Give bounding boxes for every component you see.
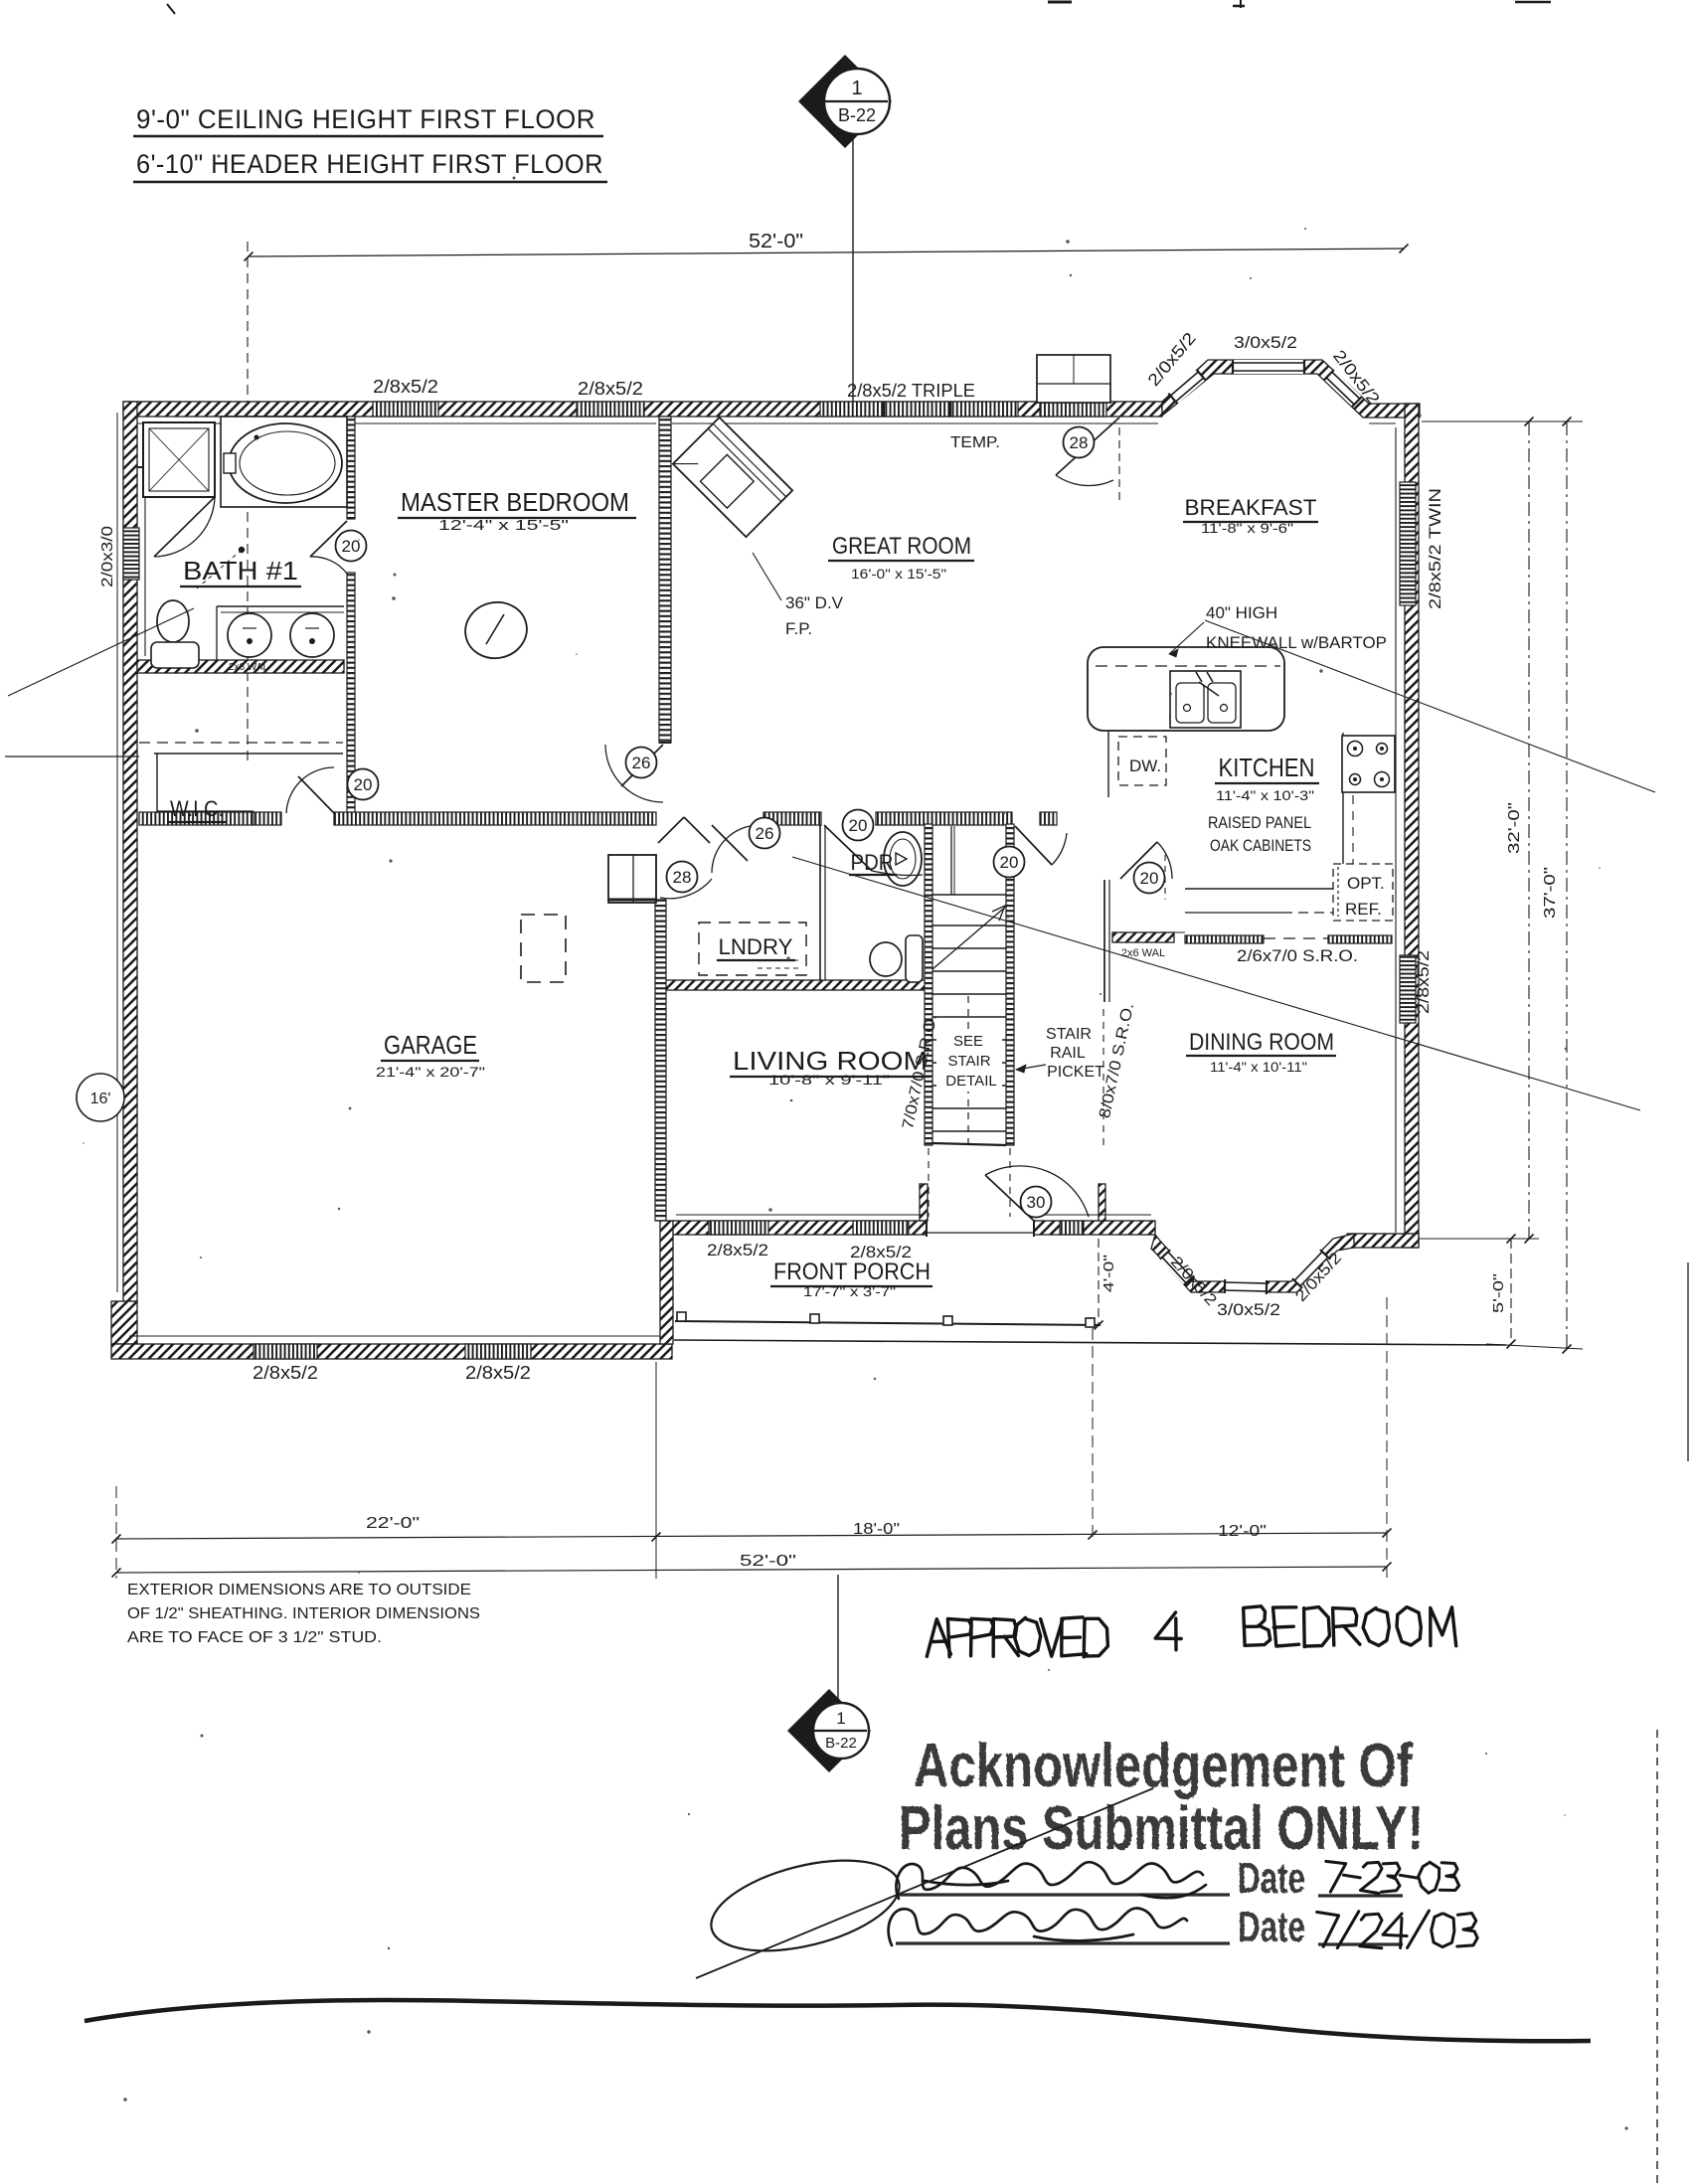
- svg-text:DINING ROOM: DINING ROOM: [1189, 1029, 1334, 1056]
- svg-text:1: 1: [836, 1709, 845, 1728]
- svg-text:DW.: DW.: [1129, 756, 1161, 775]
- svg-text:Acknowledgement Of: Acknowledgement Of: [914, 1732, 1413, 1800]
- svg-text:2/8x5/2: 2/8x5/2: [253, 1363, 318, 1383]
- svg-text:STAIR: STAIR: [1046, 1026, 1092, 1043]
- svg-text:52'-0": 52'-0": [740, 1553, 796, 1570]
- svg-text:DETAIL: DETAIL: [945, 1073, 996, 1090]
- svg-text:Date: Date: [1238, 1903, 1305, 1951]
- svg-text:ARE TO FACE OF 3 1/2" STUD.: ARE TO FACE OF 3 1/2" STUD.: [127, 1629, 382, 1646]
- svg-text:22'-0": 22'-0": [366, 1515, 420, 1532]
- svg-text:EXTERIOR DIMENSIONS ARE TO OUT: EXTERIOR DIMENSIONS ARE TO OUTSIDE: [127, 1582, 471, 1598]
- svg-text:5'-0": 5'-0": [1490, 1273, 1507, 1313]
- svg-text:OPT.: OPT.: [1347, 874, 1385, 893]
- svg-text:28: 28: [1070, 433, 1089, 452]
- svg-text:B-22: B-22: [838, 105, 876, 125]
- svg-text:MASTER BEDROOM: MASTER BEDROOM: [401, 487, 629, 517]
- svg-text:Date: Date: [1238, 1854, 1305, 1903]
- svg-text:20: 20: [849, 816, 868, 835]
- svg-text:11'-4" x 10'-3": 11'-4" x 10'-3": [1216, 787, 1314, 803]
- svg-text:REF.: REF.: [1345, 900, 1382, 919]
- svg-text:Plans Submittal ONLY!: Plans Submittal ONLY!: [899, 1794, 1424, 1863]
- svg-text:TEMP.: TEMP.: [950, 434, 1000, 451]
- svg-text:B-22: B-22: [825, 1735, 857, 1752]
- svg-text:2/8x5/2: 2/8x5/2: [465, 1363, 531, 1383]
- svg-text:2/0x3/0: 2/0x3/0: [99, 526, 116, 588]
- svg-text:2/8x5/2: 2/8x5/2: [578, 379, 643, 399]
- svg-text:36" D.V: 36" D.V: [785, 593, 844, 612]
- svg-text:4'-0": 4'-0": [1101, 1255, 1117, 1292]
- svg-text:3/0x5/2: 3/0x5/2: [1217, 1300, 1280, 1319]
- svg-text:SEE: SEE: [953, 1033, 983, 1050]
- svg-text:37'-0": 37'-0": [1542, 867, 1559, 919]
- svg-text:RAIL: RAIL: [1050, 1045, 1086, 1062]
- svg-text:2x6 WAL: 2x6 WAL: [229, 662, 269, 673]
- svg-text:21'-4" x 20'-7": 21'-4" x 20'-7": [376, 1064, 485, 1080]
- svg-text:17'-7" x 3'-7": 17'-7" x 3'-7": [803, 1283, 896, 1299]
- svg-text:2/8x5/2: 2/8x5/2: [707, 1241, 768, 1260]
- svg-text:9'-0" CEILING HEIGHT FIRST FLO: 9'-0" CEILING HEIGHT FIRST FLOOR: [136, 104, 595, 134]
- svg-text:GREAT ROOM: GREAT ROOM: [832, 533, 971, 560]
- svg-text:1: 1: [851, 78, 862, 99]
- svg-text:GARAGE: GARAGE: [384, 1030, 477, 1060]
- svg-text:LNDRY: LNDRY: [719, 934, 793, 959]
- svg-text:OF 1/2" SHEATHING. INTERIOR DI: OF 1/2" SHEATHING. INTERIOR DIMENSIONS: [127, 1605, 480, 1622]
- svg-text:F.P.: F.P.: [785, 619, 812, 638]
- svg-text:28: 28: [673, 868, 692, 887]
- svg-text:30: 30: [1027, 1193, 1046, 1212]
- svg-text:2/8x5/2: 2/8x5/2: [373, 377, 438, 397]
- svg-text:32'-0": 32'-0": [1506, 802, 1523, 854]
- svg-text:FRONT PORCH: FRONT PORCH: [773, 1259, 931, 1285]
- svg-text:52'-0": 52'-0": [749, 231, 803, 252]
- svg-text:KITCHEN: KITCHEN: [1219, 753, 1315, 782]
- svg-text:OAK CABINETS: OAK CABINETS: [1210, 836, 1311, 855]
- svg-text:BATH #1: BATH #1: [183, 556, 298, 586]
- svg-text:2/8x5/2: 2/8x5/2: [850, 1243, 912, 1261]
- svg-text:20: 20: [342, 537, 361, 556]
- svg-text:2/8x5/2: 2/8x5/2: [1414, 950, 1433, 1014]
- svg-text:KNEEWALL w/BARTOP: KNEEWALL w/BARTOP: [1206, 633, 1387, 652]
- svg-text:PICKET: PICKET: [1047, 1064, 1104, 1081]
- svg-text:BREAKFAST: BREAKFAST: [1185, 495, 1317, 520]
- svg-text:12'-0": 12'-0": [1218, 1523, 1267, 1540]
- svg-text:20: 20: [1000, 853, 1019, 872]
- svg-text:11'-4" x 10'-11": 11'-4" x 10'-11": [1210, 1059, 1307, 1075]
- svg-text:26: 26: [756, 824, 774, 843]
- svg-text:STAIR: STAIR: [947, 1053, 990, 1070]
- svg-text:11'-8" x 9'-6": 11'-8" x 9'-6": [1201, 520, 1293, 536]
- svg-text:12'-4" x 15'-5": 12'-4" x 15'-5": [438, 517, 569, 534]
- svg-text:2/8x5/2 TRIPLE: 2/8x5/2 TRIPLE: [847, 381, 975, 401]
- svg-text:40" HIGH: 40" HIGH: [1206, 603, 1277, 622]
- svg-text:2/6x7/0 S.R.O.: 2/6x7/0 S.R.O.: [1237, 946, 1358, 965]
- svg-text:20: 20: [354, 775, 373, 794]
- svg-text:18'-0": 18'-0": [853, 1521, 900, 1538]
- svg-text:16'-0" x 15'-5": 16'-0" x 15'-5": [851, 566, 946, 582]
- svg-text:PDR: PDR: [851, 850, 894, 875]
- svg-text:6'-10" HEADER HEIGHT FIRST FLO: 6'-10" HEADER HEIGHT FIRST FLOOR: [136, 149, 603, 179]
- svg-text:20: 20: [1140, 869, 1159, 888]
- svg-text:RAISED PANEL: RAISED PANEL: [1208, 813, 1311, 832]
- svg-text:3/0x5/2: 3/0x5/2: [1234, 333, 1297, 352]
- svg-text:2/8x5/2 TWIN: 2/8x5/2 TWIN: [1426, 488, 1444, 609]
- svg-text:16': 16': [90, 1091, 111, 1107]
- svg-text:26: 26: [632, 754, 651, 772]
- svg-text:W.I.C.: W.I.C.: [170, 796, 224, 821]
- svg-text:10'-8" x 9'-11": 10'-8" x 9'-11": [768, 1072, 890, 1088]
